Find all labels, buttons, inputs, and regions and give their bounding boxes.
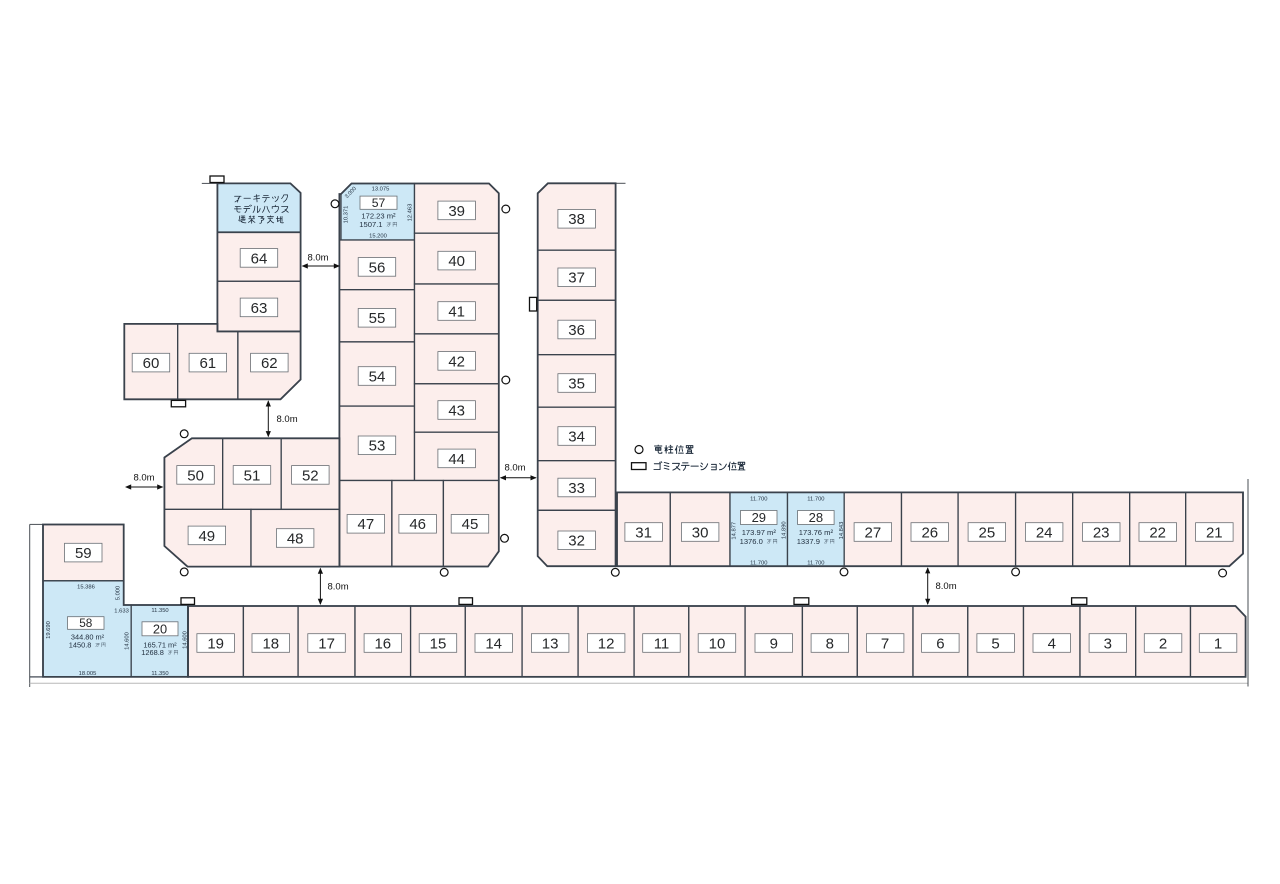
svg-text:22: 22 <box>1149 524 1166 541</box>
svg-text:7: 7 <box>881 635 889 652</box>
svg-text:59: 59 <box>75 545 92 562</box>
svg-text:9: 9 <box>770 635 778 652</box>
svg-text:56: 56 <box>369 259 386 276</box>
svg-text:38: 38 <box>568 211 585 228</box>
svg-text:10: 10 <box>709 635 726 652</box>
svg-text:37: 37 <box>568 270 585 287</box>
svg-text:8.0m: 8.0m <box>936 581 957 592</box>
svg-text:29: 29 <box>752 510 766 525</box>
svg-text:13: 13 <box>542 635 559 652</box>
svg-text:14.600: 14.600 <box>125 632 131 650</box>
svg-text:34: 34 <box>568 428 585 445</box>
svg-text:15.200: 15.200 <box>369 234 387 240</box>
svg-text:20: 20 <box>153 621 167 636</box>
svg-text:57: 57 <box>372 196 386 210</box>
svg-text:1: 1 <box>1214 635 1222 652</box>
svg-text:8: 8 <box>826 635 834 652</box>
svg-text:40: 40 <box>448 253 465 270</box>
svg-text:15: 15 <box>430 635 447 652</box>
svg-text:48: 48 <box>287 530 304 547</box>
svg-text:32: 32 <box>568 533 585 550</box>
svg-text:11.700: 11.700 <box>750 496 767 502</box>
svg-text:5: 5 <box>991 635 999 652</box>
svg-text:173.76 m²: 173.76 m² <box>799 528 834 537</box>
svg-text:8.0m: 8.0m <box>133 473 154 484</box>
svg-text:11: 11 <box>654 635 670 652</box>
svg-text:55: 55 <box>369 310 386 327</box>
svg-text:54: 54 <box>369 368 386 385</box>
svg-text:61: 61 <box>199 355 216 372</box>
svg-text:4: 4 <box>1048 635 1056 652</box>
svg-text:26: 26 <box>921 524 938 541</box>
svg-text:31: 31 <box>635 524 652 541</box>
svg-text:3: 3 <box>1104 635 1112 652</box>
svg-text:62: 62 <box>261 355 278 372</box>
svg-text:2: 2 <box>1159 635 1167 652</box>
svg-text:6: 6 <box>936 635 944 652</box>
svg-text:21: 21 <box>1206 524 1223 541</box>
svg-text:14: 14 <box>485 635 502 652</box>
svg-text:64: 64 <box>251 250 268 267</box>
svg-text:36: 36 <box>568 322 585 339</box>
svg-text:42: 42 <box>448 353 465 370</box>
svg-text:1268.8: 1268.8 <box>141 648 164 657</box>
svg-text:10.371: 10.371 <box>344 206 350 224</box>
svg-text:1450.8: 1450.8 <box>69 640 92 649</box>
svg-text:49: 49 <box>198 528 215 545</box>
svg-text:173.97 m²: 173.97 m² <box>742 528 777 537</box>
svg-text:58: 58 <box>79 616 93 630</box>
svg-text:51: 51 <box>244 467 261 484</box>
svg-text:12.463: 12.463 <box>408 204 414 222</box>
svg-text:30: 30 <box>692 524 709 541</box>
svg-text:63: 63 <box>251 300 268 317</box>
svg-text:17: 17 <box>318 635 335 652</box>
svg-text:44: 44 <box>448 451 465 468</box>
svg-text:14.890: 14.890 <box>782 521 788 539</box>
svg-text:8.0m: 8.0m <box>328 581 349 592</box>
svg-text:5.000: 5.000 <box>116 586 122 601</box>
svg-text:39: 39 <box>448 203 465 220</box>
svg-text:1.633: 1.633 <box>114 609 129 615</box>
svg-text:23: 23 <box>1093 524 1110 541</box>
svg-text:19: 19 <box>207 635 224 652</box>
svg-text:47: 47 <box>358 516 375 533</box>
svg-text:41: 41 <box>448 303 465 320</box>
svg-text:24: 24 <box>1036 524 1053 541</box>
svg-text:45: 45 <box>462 516 479 533</box>
svg-text:28: 28 <box>809 510 823 525</box>
svg-text:35: 35 <box>568 375 585 392</box>
svg-text:53: 53 <box>369 438 386 455</box>
svg-text:52: 52 <box>302 467 319 484</box>
svg-text:18: 18 <box>262 635 279 652</box>
svg-text:8.0m: 8.0m <box>504 463 525 474</box>
svg-text:14.877: 14.877 <box>731 522 737 540</box>
svg-text:11.700: 11.700 <box>807 496 824 502</box>
svg-text:12: 12 <box>598 635 615 652</box>
svg-text:25: 25 <box>979 524 996 541</box>
svg-text:46: 46 <box>409 516 426 533</box>
svg-text:50: 50 <box>187 467 204 484</box>
svg-text:13.075: 13.075 <box>372 187 390 193</box>
svg-text:15.386: 15.386 <box>77 585 95 591</box>
svg-text:33: 33 <box>568 480 585 497</box>
svg-text:27: 27 <box>865 524 882 541</box>
svg-text:60: 60 <box>143 355 160 372</box>
svg-text:16: 16 <box>374 635 391 652</box>
svg-text:8.0m: 8.0m <box>307 252 328 263</box>
svg-text:43: 43 <box>448 402 465 419</box>
svg-text:1337.9: 1337.9 <box>797 537 820 546</box>
svg-text:11.350: 11.350 <box>151 608 168 614</box>
svg-text:1376.0: 1376.0 <box>740 537 763 546</box>
svg-text:8.0m: 8.0m <box>277 414 298 425</box>
svg-text:1507.1: 1507.1 <box>359 220 382 229</box>
svg-text:19.690: 19.690 <box>46 621 52 639</box>
